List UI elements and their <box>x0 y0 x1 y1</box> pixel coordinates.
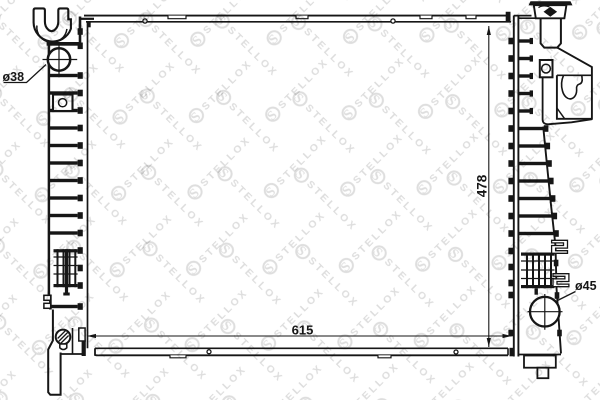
svg-text:ø45: ø45 <box>575 279 597 293</box>
